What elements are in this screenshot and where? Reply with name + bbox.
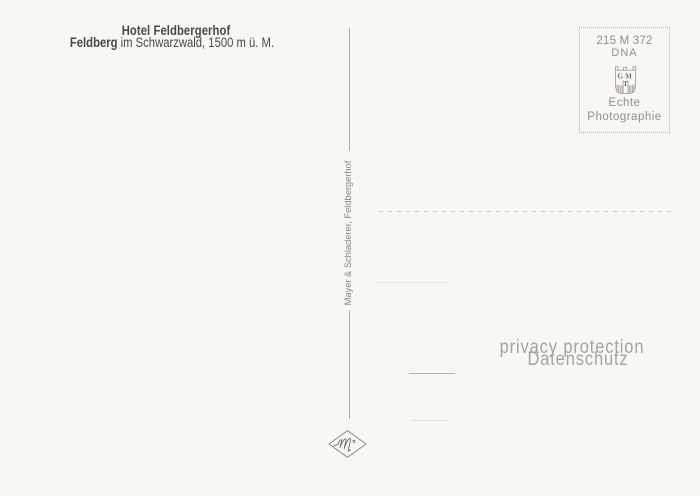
svg-text:T: T [623, 79, 628, 88]
